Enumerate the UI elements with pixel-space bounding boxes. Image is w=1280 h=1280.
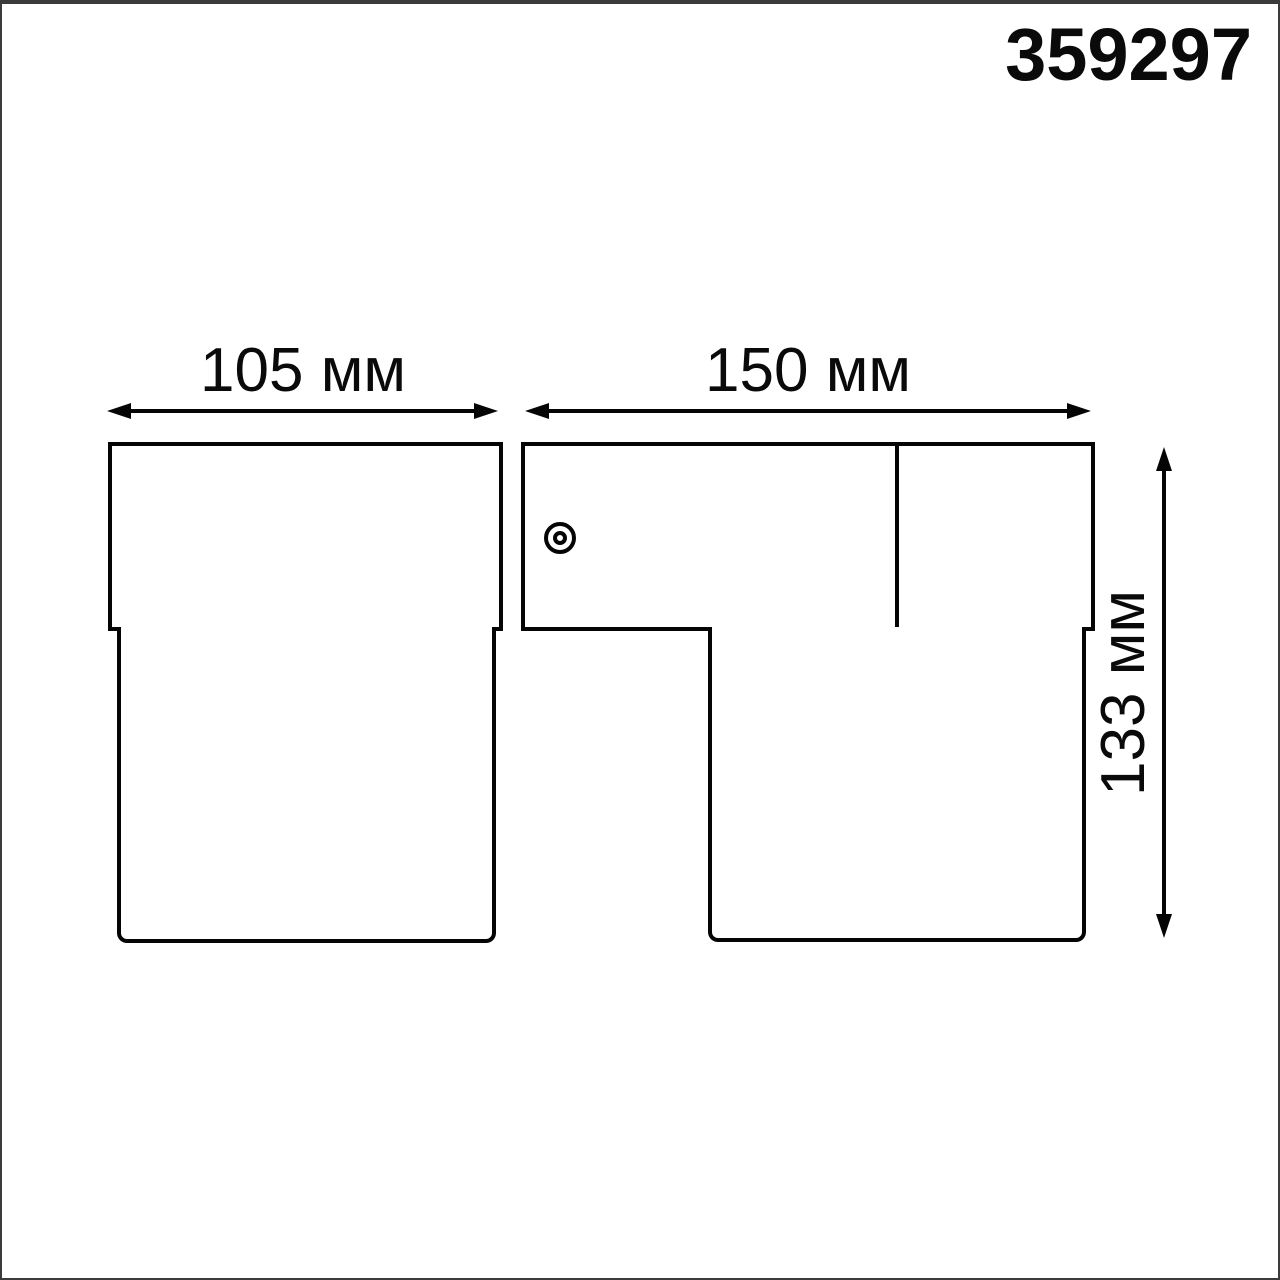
dim-label-width-left: 105 мм	[108, 340, 498, 402]
right-view-shade	[708, 627, 1086, 942]
left-view-mount-body	[108, 442, 503, 631]
product-code: 359297	[1005, 18, 1252, 92]
dim-arrow-width-left	[107, 403, 498, 419]
dimension-diagram-canvas: 359297 105 мм 150 мм 133 мм	[0, 0, 1280, 1280]
right-view-cap-divider-line	[895, 445, 899, 628]
left-view-shade	[117, 627, 496, 943]
dim-arrow-height-right	[1156, 447, 1172, 938]
screw-inner-circle	[553, 531, 567, 545]
dim-label-width-right: 150 мм	[525, 340, 1091, 402]
screw-icon	[544, 522, 576, 554]
dim-arrow-width-right	[525, 403, 1091, 419]
dim-label-height-right: 133 мм	[1091, 443, 1157, 943]
right-view-body	[521, 442, 1095, 631]
